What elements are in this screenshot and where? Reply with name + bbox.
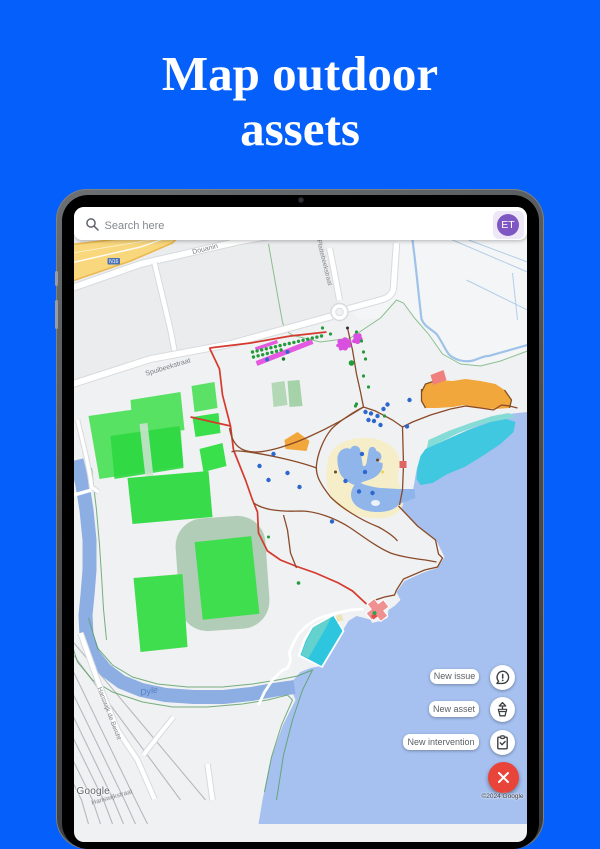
svg-text:N16: N16 — [109, 259, 118, 265]
